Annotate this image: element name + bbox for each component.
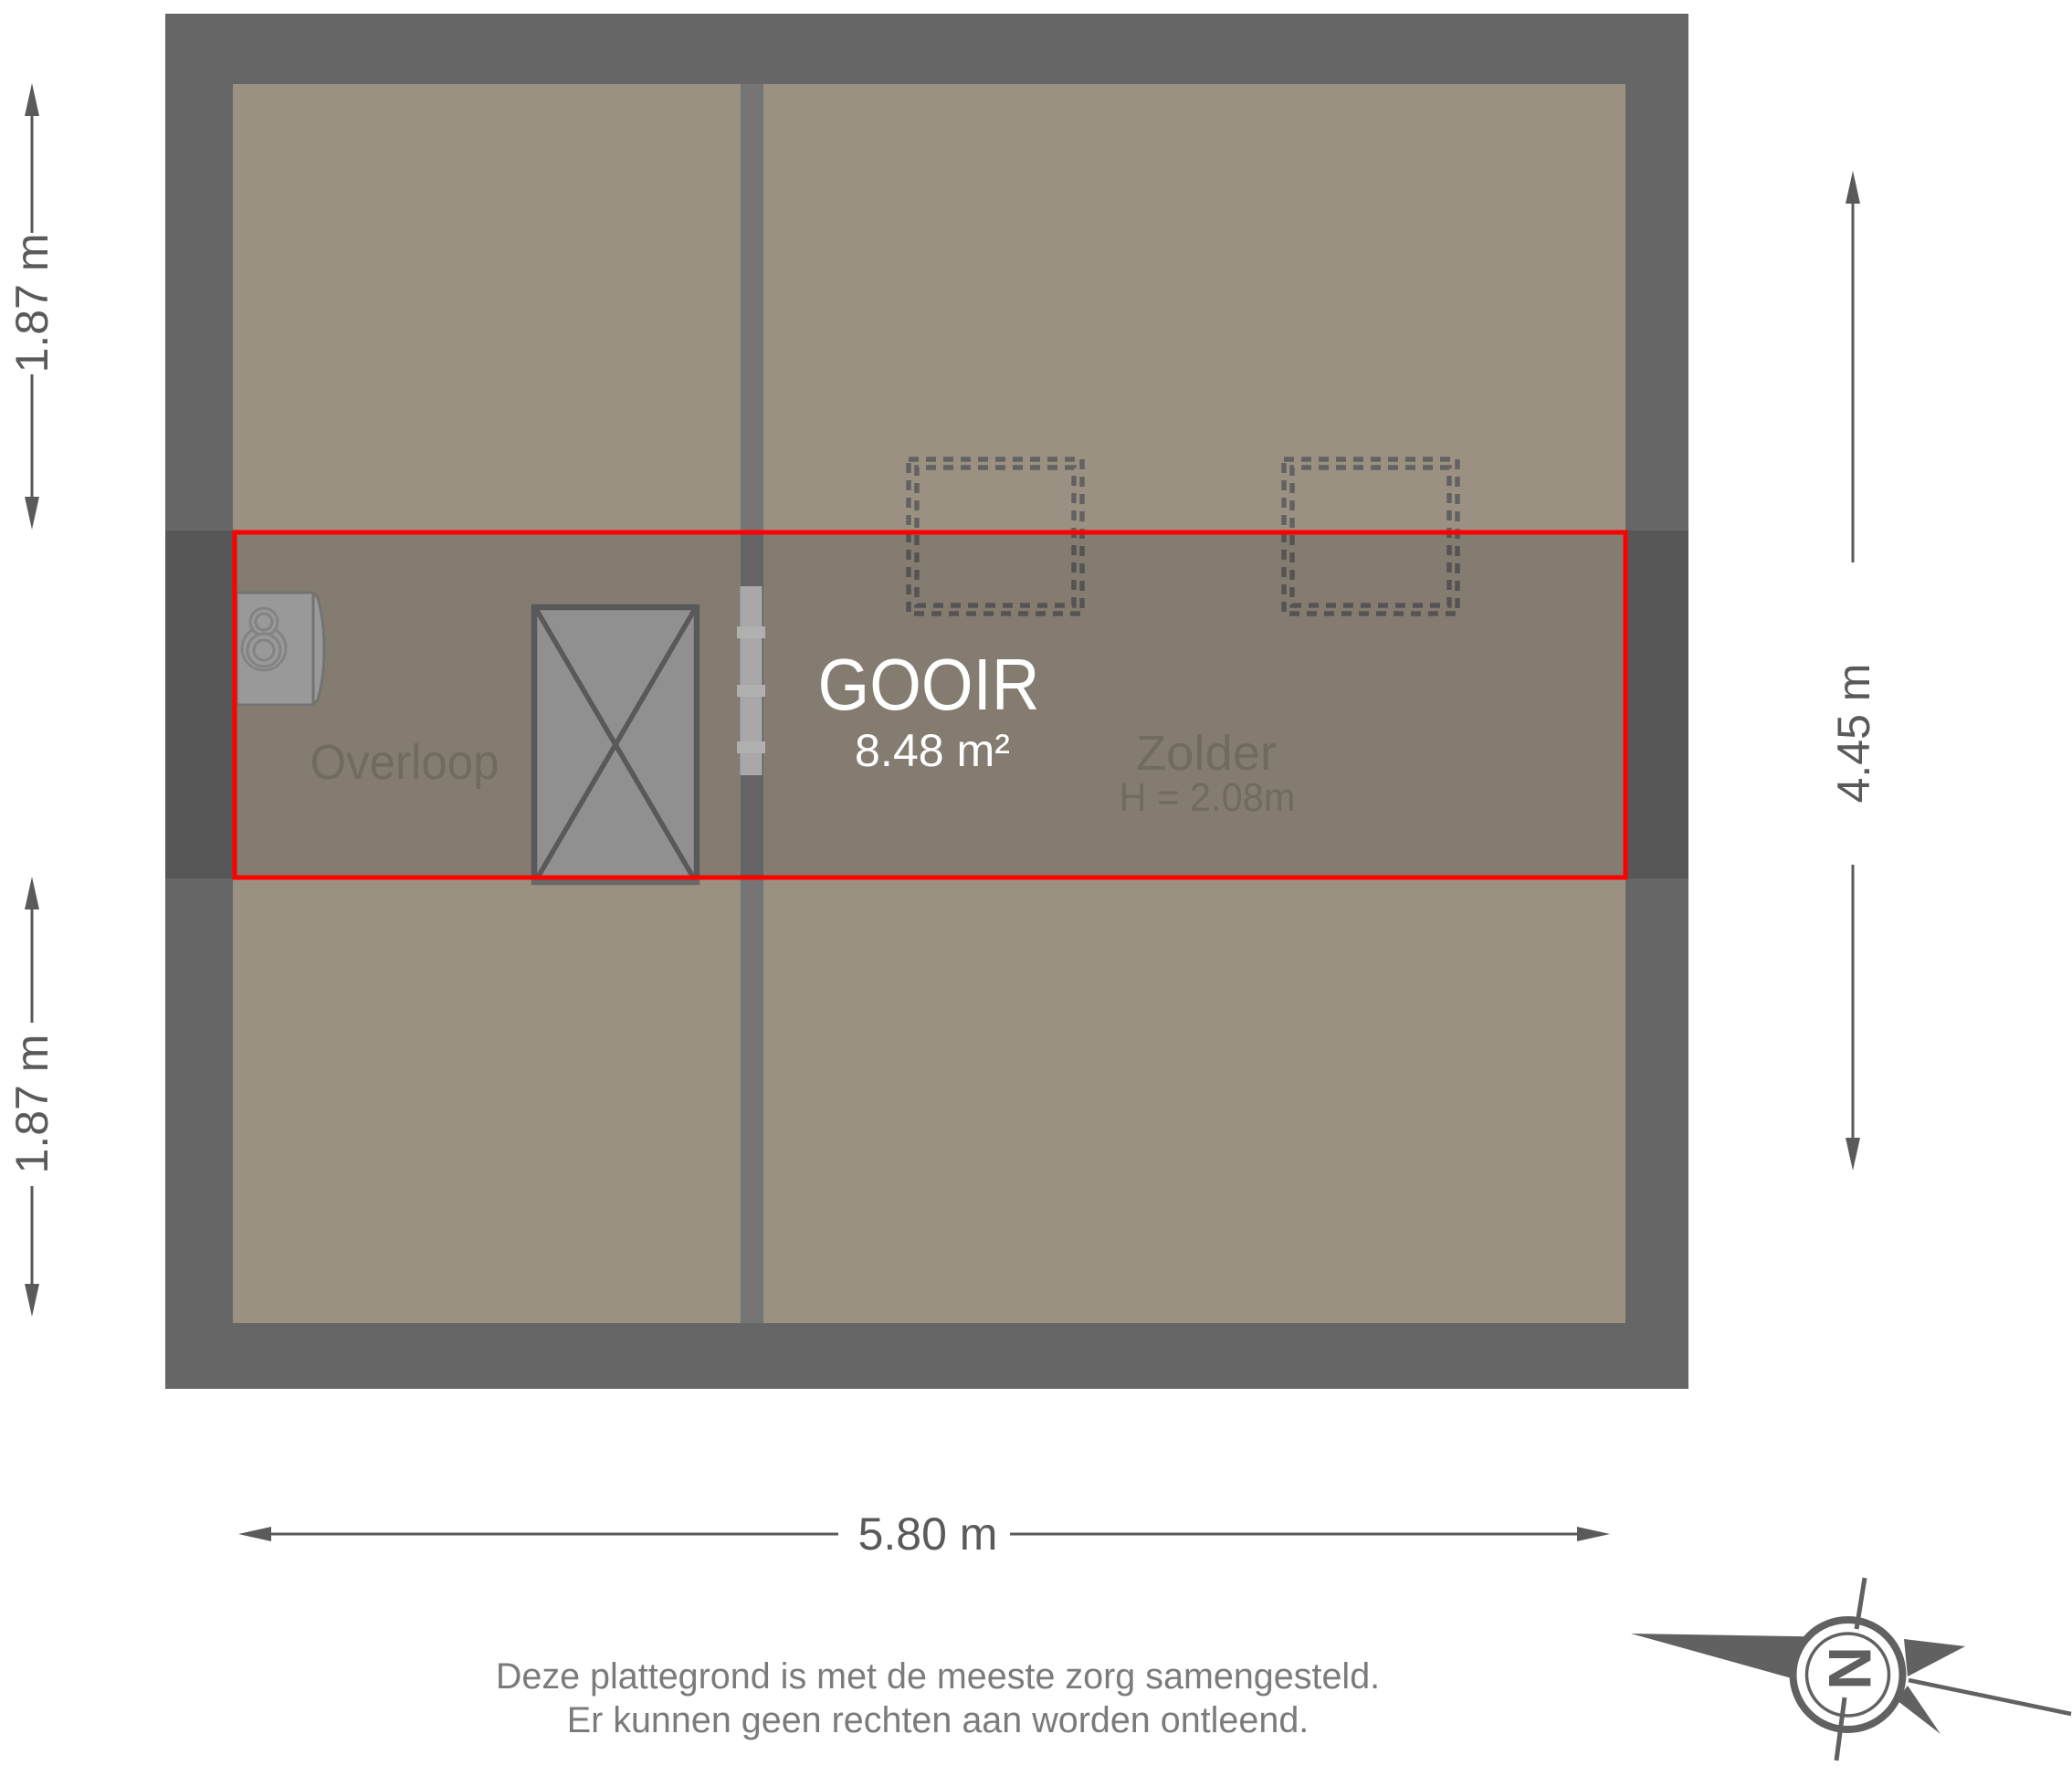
svg-text:8.48 m²: 8.48 m² bbox=[855, 725, 1010, 776]
svg-text:H = 2.08m: H = 2.08m bbox=[1120, 775, 1296, 820]
svg-text:4.45 m: 4.45 m bbox=[1828, 664, 1879, 804]
svg-text:GOOIR: GOOIR bbox=[818, 644, 1040, 725]
svg-text:Overloop: Overloop bbox=[310, 735, 500, 790]
svg-text:Zolder: Zolder bbox=[1136, 726, 1277, 781]
svg-text:Er kunnen geen rechten aan wor: Er kunnen geen rechten aan worden ontlee… bbox=[567, 1700, 1309, 1740]
svg-text:5.80 m: 5.80 m bbox=[858, 1508, 998, 1560]
svg-text:Deze plattegrond is met de mee: Deze plattegrond is met de meeste zorg s… bbox=[496, 1656, 1380, 1697]
svg-text:1.87 m: 1.87 m bbox=[6, 1035, 58, 1174]
svg-text:N: N bbox=[1816, 1646, 1884, 1690]
svg-text:1.87 m: 1.87 m bbox=[6, 234, 58, 373]
